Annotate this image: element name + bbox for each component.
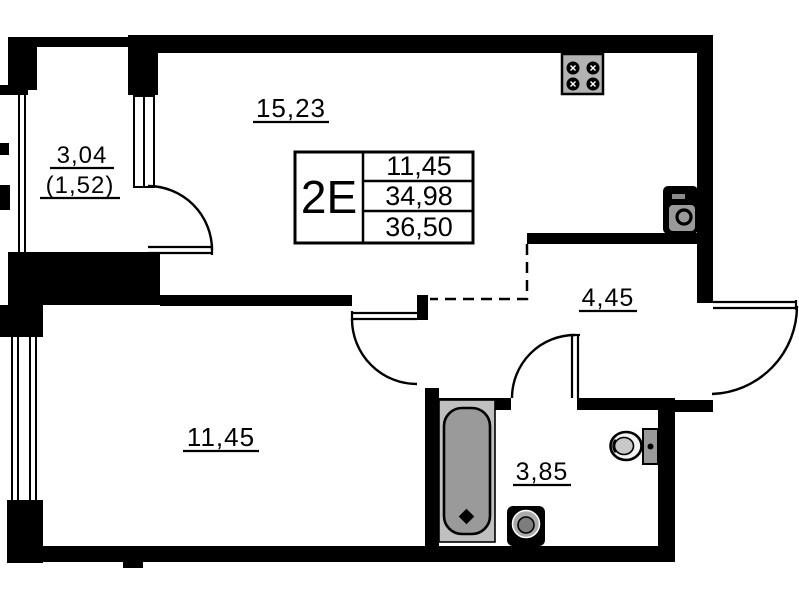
- wall-entry-stub: [673, 400, 713, 412]
- toilet-tank-button: [648, 444, 654, 450]
- balcony-door: [148, 186, 212, 255]
- wall-bottom-main: [30, 546, 675, 562]
- floorplan-drawing: 15,23 3,04 (1,52) 11,45 4,45 3,85 2E 11,…: [0, 0, 799, 600]
- unit-info-table: 2E 11,45 34,98 36,50: [295, 151, 473, 243]
- wall-top-main: [128, 35, 713, 53]
- wall-balcony-mullion-1: [0, 143, 9, 155]
- table-total-area-value: 36,50: [385, 212, 453, 242]
- stove-icon: [562, 54, 603, 94]
- wall-bedroom-top-endcap: [417, 295, 428, 320]
- wall-balcony-partition-stub: [128, 35, 158, 95]
- wall-kitchen-hall-separator: [527, 233, 698, 244]
- wall-balcony-mullion-2: [0, 185, 10, 210]
- entrance-door: [712, 300, 797, 394]
- balcony-door-arc: [148, 186, 212, 250]
- entrance-door-arc: [712, 306, 797, 394]
- wall-balcony-topleft-corner: [8, 37, 37, 90]
- table-area-value: 34,98: [385, 181, 453, 211]
- label-hallway-area: 4,45: [582, 284, 635, 312]
- kitchen-zone-dashed-boundary: [430, 244, 527, 299]
- bedroom-door: [352, 311, 417, 384]
- label-balcony-reduced-area: (1,52): [46, 172, 115, 199]
- wall-bedroom-top: [160, 295, 352, 306]
- wall-bottom-tab: [123, 562, 143, 568]
- floorplan-page: 15,23 3,04 (1,52) 11,45 4,45 3,85 2E 11,…: [0, 0, 799, 600]
- label-bedroom-area: 11,45: [187, 422, 255, 452]
- label-kitchen-living-area: 15,23: [256, 93, 326, 123]
- bathroom-sink-drain: [518, 517, 534, 533]
- balcony-left-window: [19, 95, 25, 253]
- label-balcony-area: 3,04: [57, 142, 108, 169]
- bathroom-door: [512, 335, 580, 398]
- wall-bedroom-left-top-corner: [0, 305, 43, 337]
- label-bathroom-area: 3,85: [516, 458, 569, 486]
- bathroom-sink-icon: [507, 506, 545, 546]
- wall-balcony-bottom-step: [130, 253, 160, 295]
- toilet-icon: [611, 429, 659, 464]
- wall-left-stub-top: [0, 85, 28, 95]
- wall-bathroom-right: [658, 400, 675, 562]
- wall-right-main: [697, 37, 713, 303]
- bathroom-door-arc: [512, 335, 575, 398]
- bedroom-door-arc: [352, 319, 417, 384]
- wall-bathroom-left: [425, 388, 439, 548]
- bathtub-icon: [439, 400, 495, 542]
- bedroom-left-window: [12, 337, 36, 500]
- toilet-bowl-inner: [615, 438, 634, 455]
- kitchen-sink-icon: [663, 186, 698, 234]
- table-living-area-value: 11,45: [386, 151, 452, 181]
- kitchen-sink-faucet: [672, 194, 685, 199]
- balcony-partition-window: [134, 95, 154, 188]
- table-unit-label: 2E: [301, 171, 357, 223]
